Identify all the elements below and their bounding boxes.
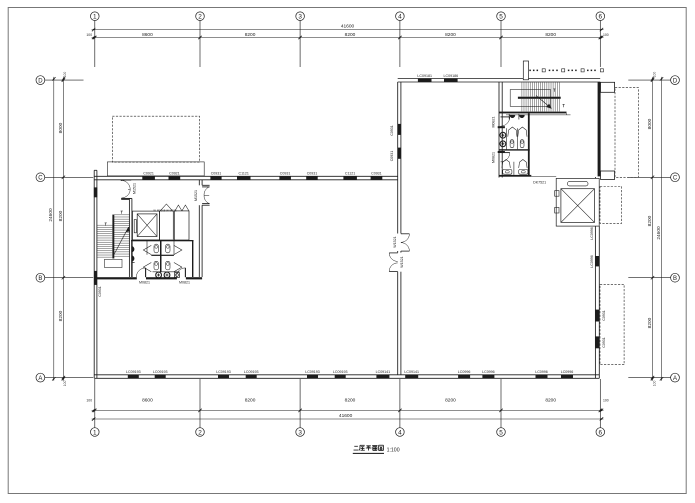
svg-text:100: 100 <box>652 72 656 78</box>
svg-text:8200: 8200 <box>245 32 256 38</box>
svg-text:8000: 8000 <box>647 118 653 129</box>
svg-text:D: D <box>673 78 678 84</box>
svg-text:100: 100 <box>86 398 92 402</box>
svg-text:8200: 8200 <box>445 32 456 38</box>
svg-text:8000: 8000 <box>58 122 64 133</box>
svg-text:6: 6 <box>599 14 603 21</box>
svg-text:8200: 8200 <box>647 215 653 226</box>
svg-text:4: 4 <box>398 14 402 21</box>
svg-text:8200: 8200 <box>545 32 556 38</box>
svg-text:C1121: C1121 <box>239 172 249 176</box>
svg-text:1:100: 1:100 <box>387 447 400 453</box>
svg-text:8200: 8200 <box>58 310 64 321</box>
svg-text:M0821: M0821 <box>491 117 495 128</box>
svg-text:M0821: M0821 <box>139 280 150 284</box>
svg-text:M0821: M0821 <box>491 152 495 163</box>
svg-text:LC09193: LC09193 <box>305 370 320 374</box>
svg-text:2: 2 <box>198 14 202 21</box>
svg-text:B: B <box>673 276 677 282</box>
svg-text:5: 5 <box>499 429 503 436</box>
svg-text:41600: 41600 <box>341 23 355 29</box>
svg-text:8200: 8200 <box>445 397 456 403</box>
svg-text:LC09181: LC09181 <box>417 74 432 78</box>
svg-text:LC09193: LC09193 <box>126 370 141 374</box>
svg-text:5: 5 <box>499 14 503 21</box>
svg-text:24600: 24600 <box>48 208 54 222</box>
svg-text:LC09193: LC09193 <box>216 370 231 374</box>
svg-text:3: 3 <box>298 429 302 436</box>
svg-text:LC09186: LC09186 <box>444 74 459 78</box>
svg-text:C0931: C0931 <box>371 172 382 176</box>
svg-text:8200: 8200 <box>58 210 64 221</box>
svg-text:C0931: C0931 <box>602 310 606 321</box>
svg-text:24600: 24600 <box>656 226 662 240</box>
svg-text:M0821: M0821 <box>179 280 190 284</box>
svg-text:100: 100 <box>63 381 67 387</box>
svg-text:W1521: W1521 <box>393 236 397 247</box>
svg-text:A: A <box>38 376 42 382</box>
svg-text:C: C <box>673 176 678 182</box>
svg-text:8200: 8200 <box>647 317 653 328</box>
svg-text:100: 100 <box>603 33 609 37</box>
svg-text:100: 100 <box>652 381 656 387</box>
svg-text:8200: 8200 <box>245 397 256 403</box>
svg-text:LC09193: LC09193 <box>153 370 168 374</box>
svg-text:2: 2 <box>198 429 202 436</box>
svg-text:8600: 8600 <box>142 32 153 38</box>
svg-text:C0931: C0931 <box>211 172 222 176</box>
svg-text:3: 3 <box>298 14 302 21</box>
svg-text:1: 1 <box>93 14 97 21</box>
svg-text:B: B <box>38 276 42 282</box>
svg-text:M1521: M1521 <box>133 183 137 194</box>
svg-text:C0931: C0931 <box>280 172 291 176</box>
svg-text:LC0996: LC0996 <box>482 370 495 374</box>
svg-text:C1121: C1121 <box>345 172 355 176</box>
svg-text:6: 6 <box>599 429 603 436</box>
svg-text:C0931: C0931 <box>98 286 102 297</box>
svg-text:100: 100 <box>63 72 67 78</box>
svg-text:W M2015 W M215: W M2015 W M215 <box>153 209 177 213</box>
svg-text:1: 1 <box>93 429 97 436</box>
svg-text:LC0996: LC0996 <box>590 255 594 268</box>
svg-text:C0931: C0931 <box>307 172 318 176</box>
svg-text:W1521: W1521 <box>400 256 404 267</box>
svg-text:DK7521: DK7521 <box>533 181 546 185</box>
svg-text:8600: 8600 <box>142 397 153 403</box>
svg-text:M1521: M1521 <box>194 190 198 201</box>
svg-text:C0931: C0931 <box>602 337 606 348</box>
svg-text:100: 100 <box>603 398 609 402</box>
svg-text:8200: 8200 <box>345 397 356 403</box>
svg-text:C0921: C0921 <box>169 172 180 176</box>
svg-text:D: D <box>38 78 43 84</box>
svg-text:C0931: C0931 <box>390 125 394 136</box>
svg-text:A: A <box>673 376 677 382</box>
svg-text:C0931: C0931 <box>390 151 394 162</box>
svg-text:C: C <box>38 176 43 182</box>
svg-text:4: 4 <box>398 429 402 436</box>
svg-text:LC09193: LC09193 <box>333 370 348 374</box>
svg-text:LC09141: LC09141 <box>376 370 391 374</box>
svg-text:LC0996: LC0996 <box>590 227 594 240</box>
svg-text:LC0996: LC0996 <box>561 370 574 374</box>
svg-text:LC09193: LC09193 <box>244 370 259 374</box>
svg-text:C0921: C0921 <box>143 172 154 176</box>
svg-text:8200: 8200 <box>345 32 356 38</box>
svg-text:LC0996: LC0996 <box>535 370 548 374</box>
svg-text:41600: 41600 <box>339 413 353 419</box>
svg-text:100: 100 <box>86 33 92 37</box>
svg-text:8200: 8200 <box>545 397 556 403</box>
svg-text:LC0996: LC0996 <box>458 370 471 374</box>
svg-text:LC09141: LC09141 <box>404 370 419 374</box>
